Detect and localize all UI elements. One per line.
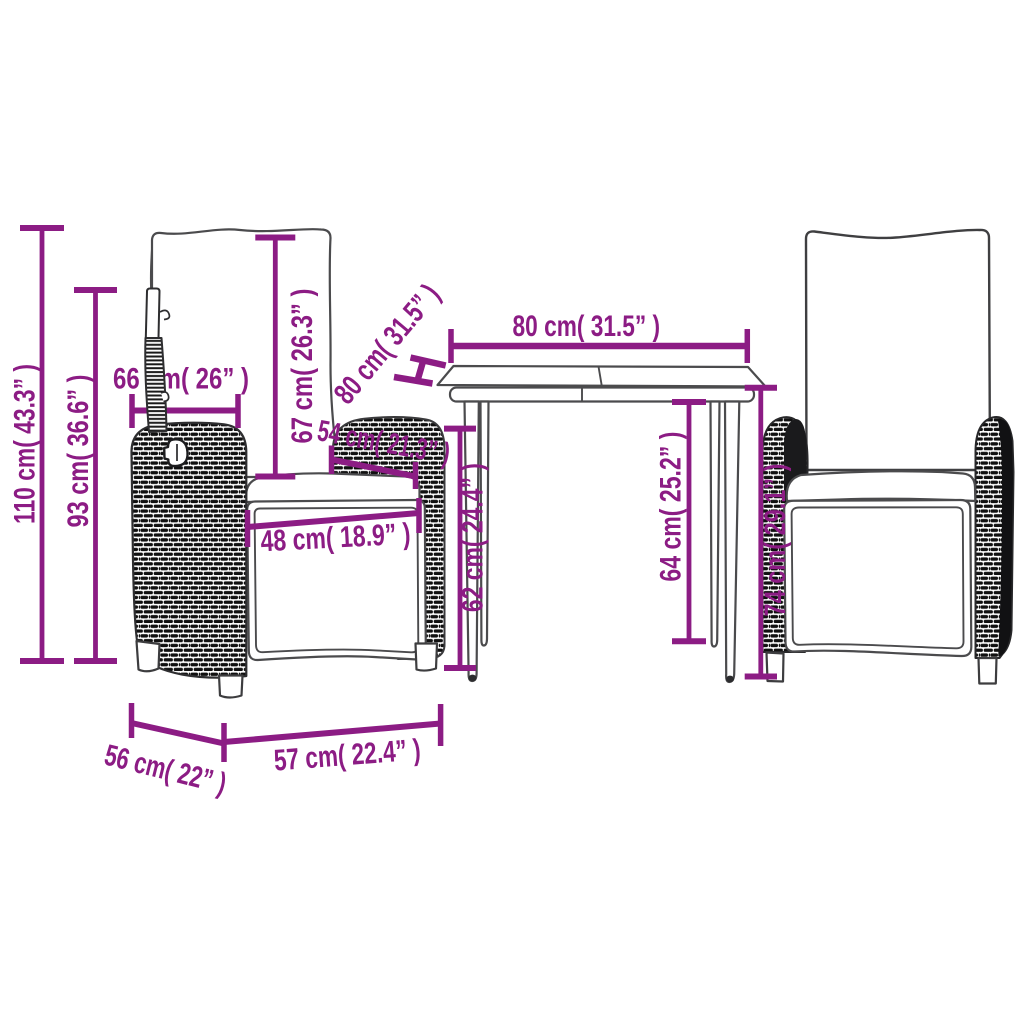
svg-text:67 cm( 26.3” ): 67 cm( 26.3” ) (286, 289, 319, 444)
svg-text:74 cm( 29.1” ): 74 cm( 29.1” ) (759, 464, 792, 617)
svg-text:110 cm( 43.3” ): 110 cm( 43.3” ) (9, 364, 42, 524)
svg-text:66 cm( 26” ): 66 cm( 26” ) (113, 363, 249, 396)
svg-text:62 cm( 24.4” ): 62 cm( 24.4” ) (457, 463, 490, 612)
svg-text:64 cm( 25.2” ): 64 cm( 25.2” ) (655, 432, 688, 582)
svg-text:93 cm( 36.6” ): 93 cm( 36.6” ) (62, 375, 95, 528)
svg-text:80 cm( 31.5” ): 80 cm( 31.5” ) (513, 310, 661, 343)
